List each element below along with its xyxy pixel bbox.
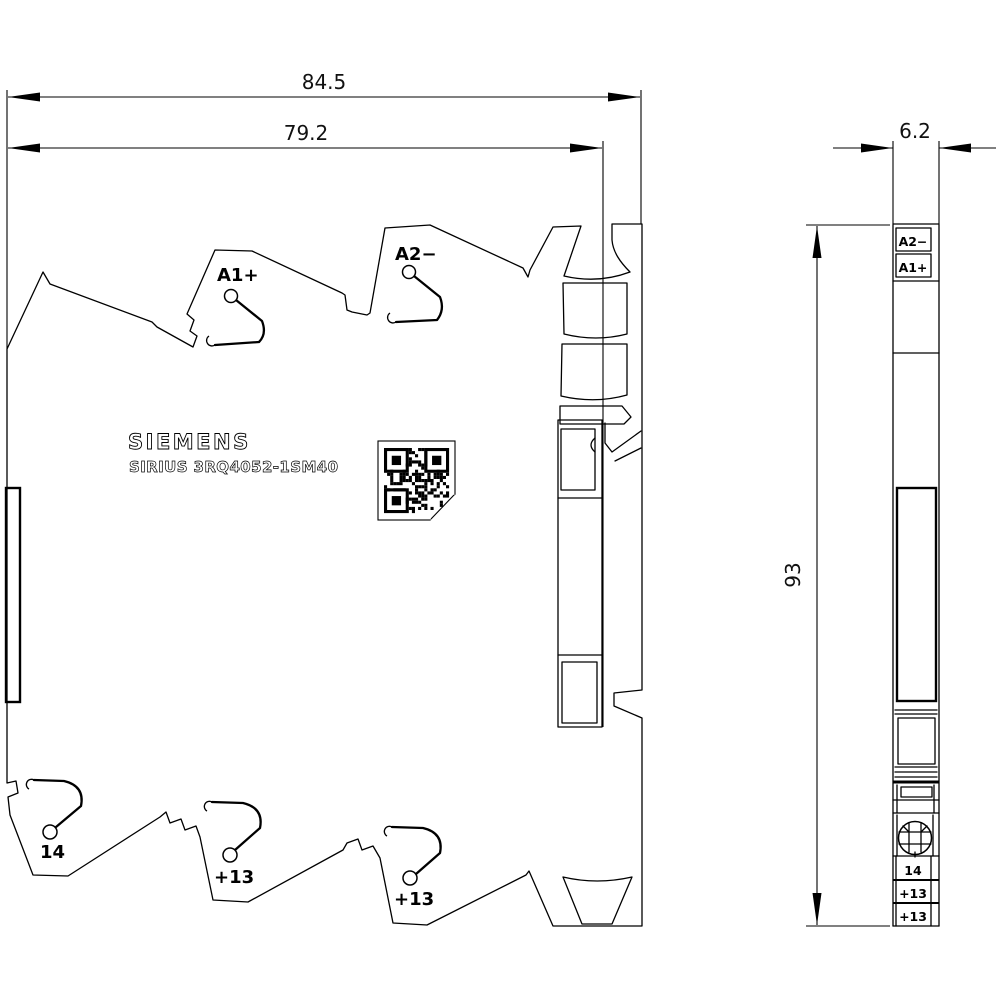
din-rail-channel	[558, 283, 641, 924]
terminal-label-a1: A1+	[217, 265, 259, 286]
side-slot	[897, 488, 936, 701]
side-latch	[893, 710, 939, 813]
dimension-text-total-width: 84.5	[302, 70, 347, 94]
side-label-14: 14	[904, 863, 922, 878]
side-label-a1: A1+	[899, 260, 928, 275]
terminal-label-13-mid: +13	[214, 867, 254, 888]
product-code: SIRIUS 3RQ4052-1SM40	[129, 458, 338, 476]
technical-drawing-canvas: 84.5 79.2 A1	[0, 0, 1000, 1000]
side-label-13a: +13	[899, 886, 927, 901]
module-outline	[7, 224, 642, 926]
dimension-text-depth: 6.2	[899, 119, 931, 143]
side-view: 6.2 93 A2− A1+	[781, 119, 996, 926]
arrowhead-left	[861, 144, 893, 153]
side-bottom-labels: 14 +13 +13	[893, 856, 939, 926]
dimension-text-height: 93	[781, 562, 805, 587]
screw-head	[897, 815, 933, 857]
terminal-label-13-right: +13	[394, 889, 434, 910]
dimension-total-width: 84.5	[7, 70, 641, 349]
side-label-13b: +13	[899, 909, 927, 924]
terminal-a2: A2−	[388, 244, 442, 323]
side-body: A2− A1+	[893, 224, 939, 926]
drawing-svg: 84.5 79.2 A1	[0, 0, 1000, 1000]
terminal-screw-13-mid	[223, 848, 237, 862]
dimension-height: 93	[781, 225, 890, 926]
terminal-a1: A1+	[207, 265, 264, 346]
brand-logo: SIEMENS	[128, 430, 251, 454]
arrowhead-left	[8, 93, 40, 102]
terminal-13-right: +13	[384, 826, 440, 910]
side-marking-plate	[6, 488, 20, 702]
arrowhead-right	[570, 144, 602, 153]
terminal-screw-13-right	[403, 871, 417, 885]
dimension-text-body-width: 79.2	[284, 121, 329, 145]
arrowhead-right	[608, 93, 640, 102]
side-label-a2: A2−	[899, 234, 928, 249]
rail-foot	[563, 877, 632, 924]
arrowhead-top	[813, 226, 822, 258]
terminal-screw-a2	[403, 266, 416, 279]
terminal-14: 14	[26, 779, 81, 863]
dimension-depth: 6.2	[833, 119, 996, 225]
terminal-label-14: 14	[40, 842, 65, 863]
dimension-body-width: 79.2	[8, 121, 603, 727]
main-view: A1+ A2− 14 +13 +13 SIEMENS	[6, 224, 642, 926]
arrowhead-bottom	[813, 893, 822, 925]
arrowhead-left	[8, 144, 40, 153]
qr-code	[378, 441, 457, 521]
arrowhead-right	[939, 144, 971, 153]
terminal-label-a2: A2−	[395, 244, 437, 265]
terminal-13-mid: +13	[204, 801, 260, 888]
terminal-screw-a1	[225, 290, 238, 303]
terminal-screw-14	[43, 825, 57, 839]
